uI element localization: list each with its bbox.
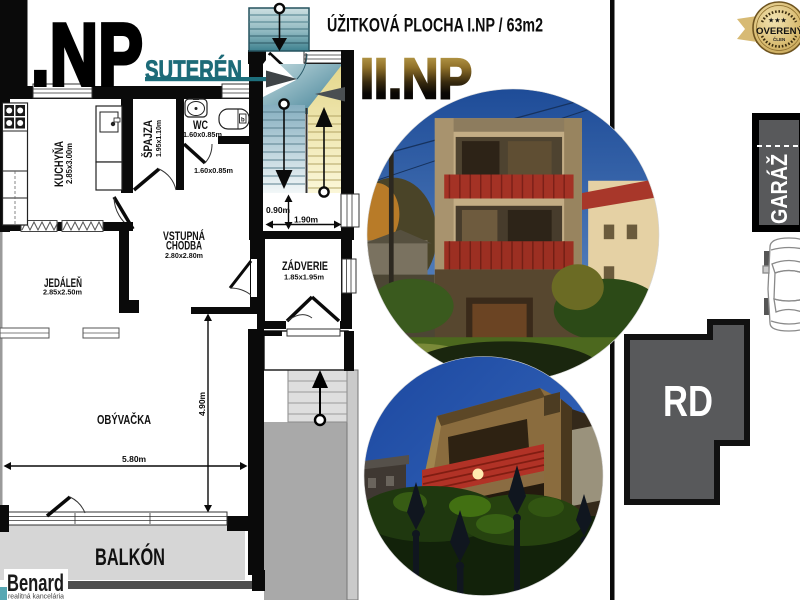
svg-text:ZÁDVERIE: ZÁDVERIE bbox=[282, 258, 328, 273]
svg-text:SUTERÉN: SUTERÉN bbox=[145, 54, 242, 85]
svg-text:RD: RD bbox=[663, 377, 713, 426]
svg-text:★★★: ★★★ bbox=[768, 17, 787, 25]
svg-text:OVERENÝ: OVERENÝ bbox=[756, 25, 800, 37]
svg-text:1.95x1.10m: 1.95x1.10m bbox=[154, 120, 163, 157]
svg-text:0.90m: 0.90m bbox=[266, 205, 291, 215]
svg-text:ÚŽITKOVÁ PLOCHA I.NP / 63m2: ÚŽITKOVÁ PLOCHA I.NP / 63m2 bbox=[327, 13, 543, 37]
svg-text:OBÝVAČKA: OBÝVAČKA bbox=[97, 412, 151, 427]
svg-text:1.60x0.85m: 1.60x0.85m bbox=[194, 166, 233, 175]
svg-text:realitná kancelária: realitná kancelária bbox=[8, 594, 64, 600]
svg-text:5.80m: 5.80m bbox=[122, 454, 147, 464]
svg-text:2.85x2.50m: 2.85x2.50m bbox=[43, 288, 82, 297]
svg-text:4.90m: 4.90m bbox=[197, 391, 207, 416]
svg-text:b: b bbox=[241, 118, 245, 124]
svg-text:1.90m: 1.90m bbox=[294, 215, 319, 225]
svg-text:1.60x0.85m: 1.60x0.85m bbox=[183, 130, 222, 139]
svg-text:2.80x2.80m: 2.80x2.80m bbox=[165, 251, 203, 260]
svg-text:ČLEN: ČLEN bbox=[773, 36, 785, 42]
svg-text:1.85x1.95m: 1.85x1.95m bbox=[284, 273, 324, 282]
svg-text:GARÁŽ: GARÁŽ bbox=[765, 154, 792, 224]
svg-text:2.85x3.00m: 2.85x3.00m bbox=[65, 143, 74, 184]
svg-text:.NP: .NP bbox=[31, 5, 143, 104]
svg-text:BALKÓN: BALKÓN bbox=[95, 543, 165, 571]
